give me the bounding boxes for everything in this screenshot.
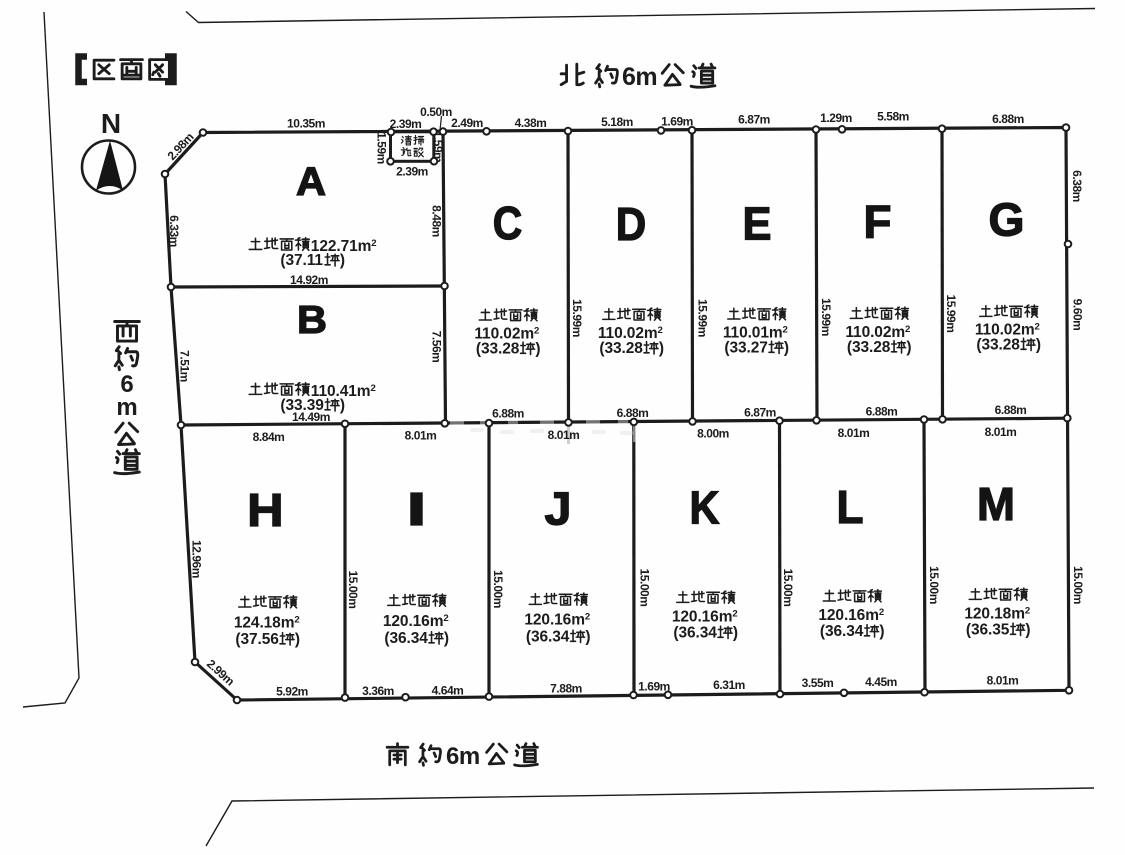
svg-text:15.00m: 15.00m <box>638 569 652 607</box>
svg-text:12.96m: 12.96m <box>190 540 204 578</box>
svg-text:6m: 6m <box>622 63 657 91</box>
svg-text:15.99m: 15.99m <box>819 298 833 336</box>
svg-text:G: G <box>989 194 1025 246</box>
svg-text:): ) <box>659 340 664 357</box>
svg-text:6.38m: 6.38m <box>1070 170 1084 202</box>
svg-text:14.92m: 14.92m <box>290 273 328 287</box>
svg-text:15.00m: 15.00m <box>491 570 505 608</box>
svg-text:(33.28: (33.28 <box>847 339 891 356</box>
svg-text:6.88m: 6.88m <box>492 407 524 421</box>
svg-text:124.18m2: 124.18m2 <box>234 615 300 632</box>
svg-text:5.92m: 5.92m <box>276 685 308 699</box>
svg-text:2.49m: 2.49m <box>451 116 483 130</box>
svg-text:7.88m: 7.88m <box>550 682 582 696</box>
svg-text:6.88m: 6.88m <box>866 405 898 419</box>
svg-text:(36.34: (36.34 <box>384 630 428 647</box>
svg-text:J: J <box>545 483 572 535</box>
svg-text:A: A <box>296 160 326 204</box>
svg-text:C: C <box>493 197 523 249</box>
svg-text:(36.34: (36.34 <box>673 625 717 642</box>
svg-text:15.99m: 15.99m <box>696 299 710 337</box>
svg-text:6.31m: 6.31m <box>713 678 745 692</box>
svg-text:): ) <box>585 629 590 646</box>
svg-text:): ) <box>340 252 345 269</box>
svg-text:): ) <box>444 630 449 647</box>
svg-text:L: L <box>837 481 864 533</box>
svg-text:15.00m: 15.00m <box>1071 566 1085 604</box>
svg-text:(33.27: (33.27 <box>724 340 767 357</box>
svg-text:1.69m: 1.69m <box>661 114 693 128</box>
svg-text:m: m <box>116 394 137 421</box>
svg-text:F: F <box>864 196 892 248</box>
svg-text:8.01m: 8.01m <box>405 429 437 443</box>
svg-text:B: B <box>297 299 327 342</box>
svg-text:8.84m: 8.84m <box>253 430 285 444</box>
svg-text:15.00m: 15.00m <box>346 571 360 609</box>
svg-text:(37.11: (37.11 <box>280 252 323 269</box>
svg-text:7.51m: 7.51m <box>178 350 192 382</box>
svg-text:3.36m: 3.36m <box>362 684 394 698</box>
svg-text:): ) <box>535 341 540 358</box>
svg-text:1.69m: 1.69m <box>638 680 670 694</box>
svg-text:8.48m: 8.48m <box>430 205 444 237</box>
svg-text:6.33m: 6.33m <box>167 215 181 247</box>
svg-text:8.01m: 8.01m <box>838 426 870 440</box>
svg-text:D: D <box>616 198 647 250</box>
svg-text:8.01m: 8.01m <box>987 674 1019 688</box>
svg-text:): ) <box>879 623 884 640</box>
svg-text:120.16m2: 120.16m2 <box>672 609 738 626</box>
svg-text:): ) <box>906 339 911 356</box>
svg-text:(33.39: (33.39 <box>280 397 324 414</box>
svg-text:5.18m: 5.18m <box>601 115 633 129</box>
svg-text:15.99m: 15.99m <box>944 295 958 333</box>
svg-text:(36.34: (36.34 <box>820 623 864 640</box>
svg-text:(37.56: (37.56 <box>235 631 279 648</box>
svg-text:6.87m: 6.87m <box>744 406 776 420</box>
svg-text:10.35m: 10.35m <box>287 117 325 131</box>
svg-text:6.88m: 6.88m <box>992 112 1024 126</box>
svg-text:1.29m: 1.29m <box>820 111 852 125</box>
svg-text:N: N <box>101 108 121 139</box>
svg-text:120.16m2: 120.16m2 <box>818 607 884 624</box>
svg-text:4.45m: 4.45m <box>865 675 897 689</box>
svg-text:15.00m: 15.00m <box>781 569 795 607</box>
svg-text:0.50m: 0.50m <box>420 105 452 119</box>
svg-text:(36.34: (36.34 <box>526 629 570 646</box>
svg-text:8.00m: 8.00m <box>697 427 729 441</box>
svg-text:8.01m: 8.01m <box>985 425 1017 439</box>
svg-text:6m: 6m <box>446 743 480 770</box>
svg-text:3.55m: 3.55m <box>802 676 834 690</box>
svg-text:4.38m: 4.38m <box>515 116 547 130</box>
svg-text:6.88m: 6.88m <box>995 403 1027 417</box>
svg-text:2.39m: 2.39m <box>390 117 422 131</box>
svg-text:I: I <box>407 483 427 535</box>
svg-text:6.87m: 6.87m <box>738 113 770 127</box>
svg-text:): ) <box>295 631 300 648</box>
svg-text:K: K <box>690 482 720 534</box>
svg-text:): ) <box>733 625 738 642</box>
svg-text:M: M <box>977 478 1015 530</box>
svg-text:15.00m: 15.00m <box>927 566 941 604</box>
svg-text:15.99m: 15.99m <box>570 299 584 337</box>
svg-text:E: E <box>743 198 772 250</box>
svg-text:9.60m: 9.60m <box>1071 299 1085 331</box>
svg-text:(36.35: (36.35 <box>966 622 1010 639</box>
svg-text:2.39m: 2.39m <box>396 165 428 179</box>
svg-text:(33.28: (33.28 <box>976 337 1020 354</box>
svg-text:(33.28: (33.28 <box>476 341 520 358</box>
svg-text:120.16m2: 120.16m2 <box>524 612 590 629</box>
svg-text:H: H <box>247 484 283 536</box>
svg-text:8.01m: 8.01m <box>548 428 580 442</box>
svg-text:4.64m: 4.64m <box>432 684 464 698</box>
svg-text:1.59m: 1.59m <box>375 132 389 164</box>
svg-text:7.56m: 7.56m <box>430 331 444 363</box>
svg-text:): ) <box>340 397 345 414</box>
svg-text:): ) <box>1025 622 1030 639</box>
svg-text:120.18m2: 120.18m2 <box>964 606 1030 623</box>
svg-text:): ) <box>784 340 789 357</box>
svg-text:5.58m: 5.58m <box>877 110 909 124</box>
svg-text:): ) <box>1036 337 1041 354</box>
svg-text:(33.28: (33.28 <box>599 340 643 357</box>
svg-text:120.16m2: 120.16m2 <box>383 613 449 630</box>
